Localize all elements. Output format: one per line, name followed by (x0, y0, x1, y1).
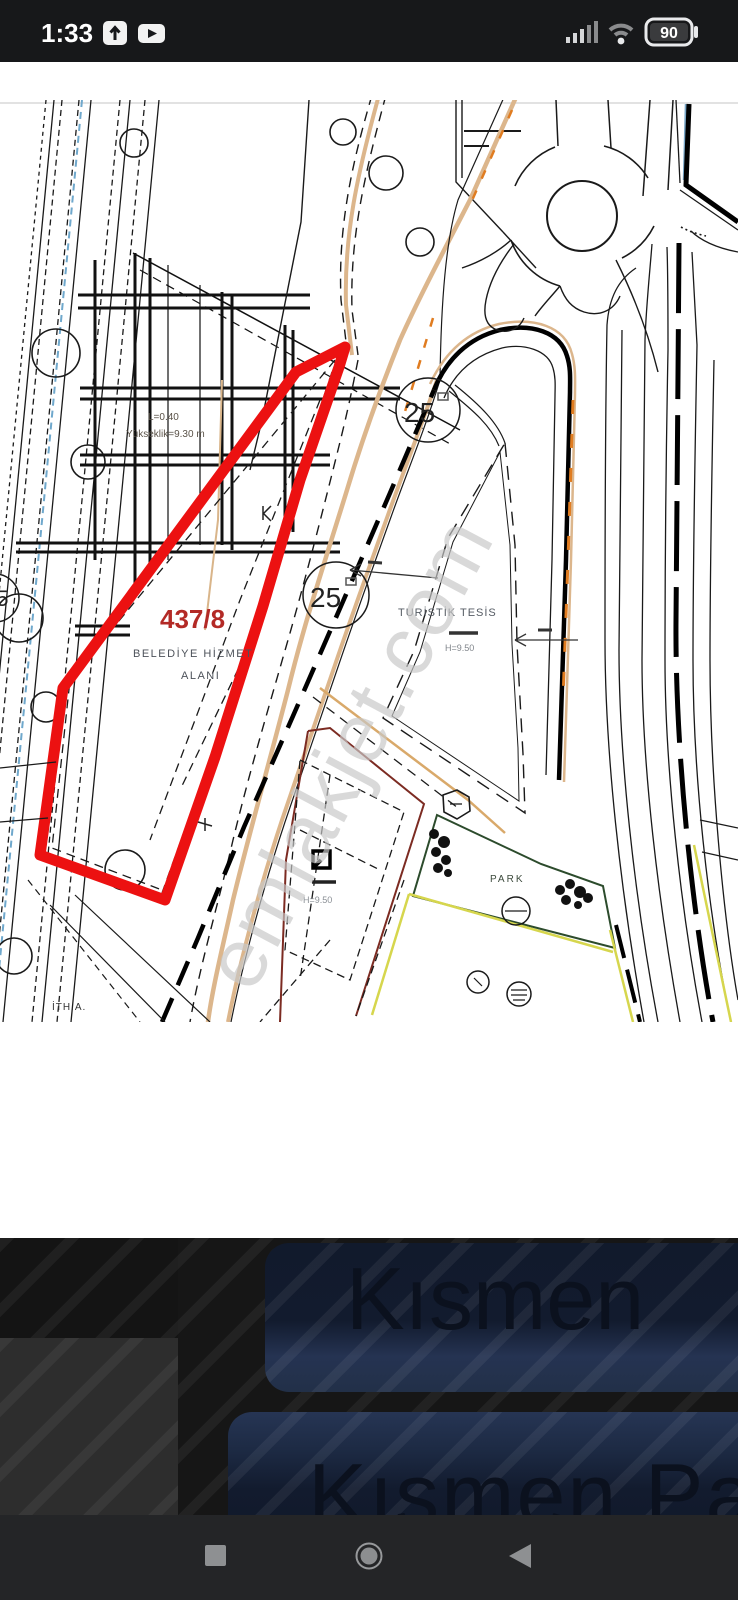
svg-text:25: 25 (310, 582, 341, 613)
svg-text:Yükseklik=9.30 m: Yükseklik=9.30 m (126, 429, 205, 440)
svg-text:25: 25 (0, 586, 8, 611)
svg-text:90: 90 (660, 25, 678, 42)
svg-text:İTH.A.: İTH.A. (52, 1000, 86, 1013)
svg-text:emlakjet.com: emlakjet.com (185, 501, 512, 1003)
svg-text:437/8: 437/8 (160, 604, 225, 634)
svg-text:BELEDİYE HİZMET: BELEDİYE HİZMET (133, 647, 253, 660)
svg-text:PARK: PARK (490, 874, 525, 885)
svg-text:ALANI: ALANI (181, 670, 220, 682)
svg-text:25: 25 (404, 397, 435, 428)
svg-text:L=0.40: L=0.40 (148, 412, 179, 423)
